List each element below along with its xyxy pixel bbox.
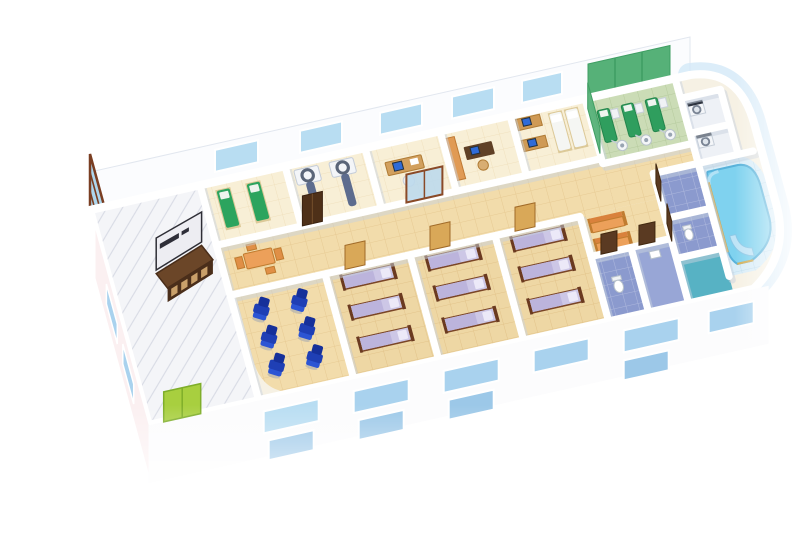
floorplan-stage [0,0,800,550]
ward-door [345,241,365,270]
bathroom-door [601,231,617,255]
floorplan-canvas [0,0,800,550]
bottom-fade [0,300,800,550]
ward-door [430,222,450,251]
bathroom-door [639,222,655,246]
washbasin [649,250,661,259]
right-fade [735,40,800,340]
ward-door [515,203,535,232]
